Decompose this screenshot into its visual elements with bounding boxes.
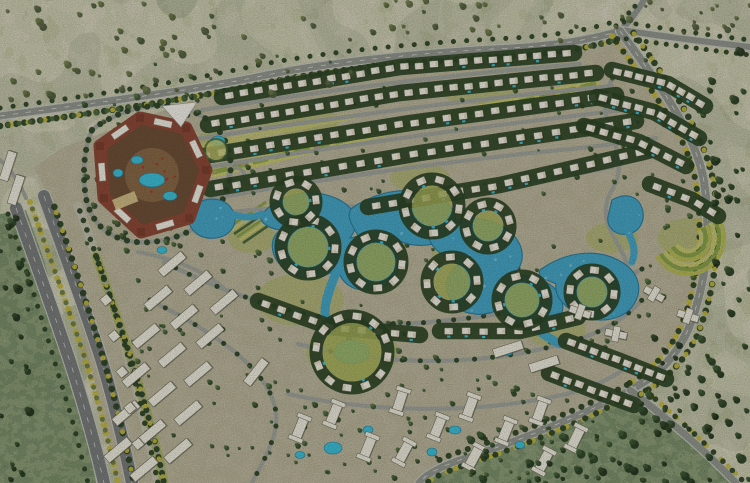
grain-overlay xyxy=(0,0,750,483)
masterplan-aerial-map xyxy=(0,0,750,483)
masterplan-svg xyxy=(0,0,750,483)
